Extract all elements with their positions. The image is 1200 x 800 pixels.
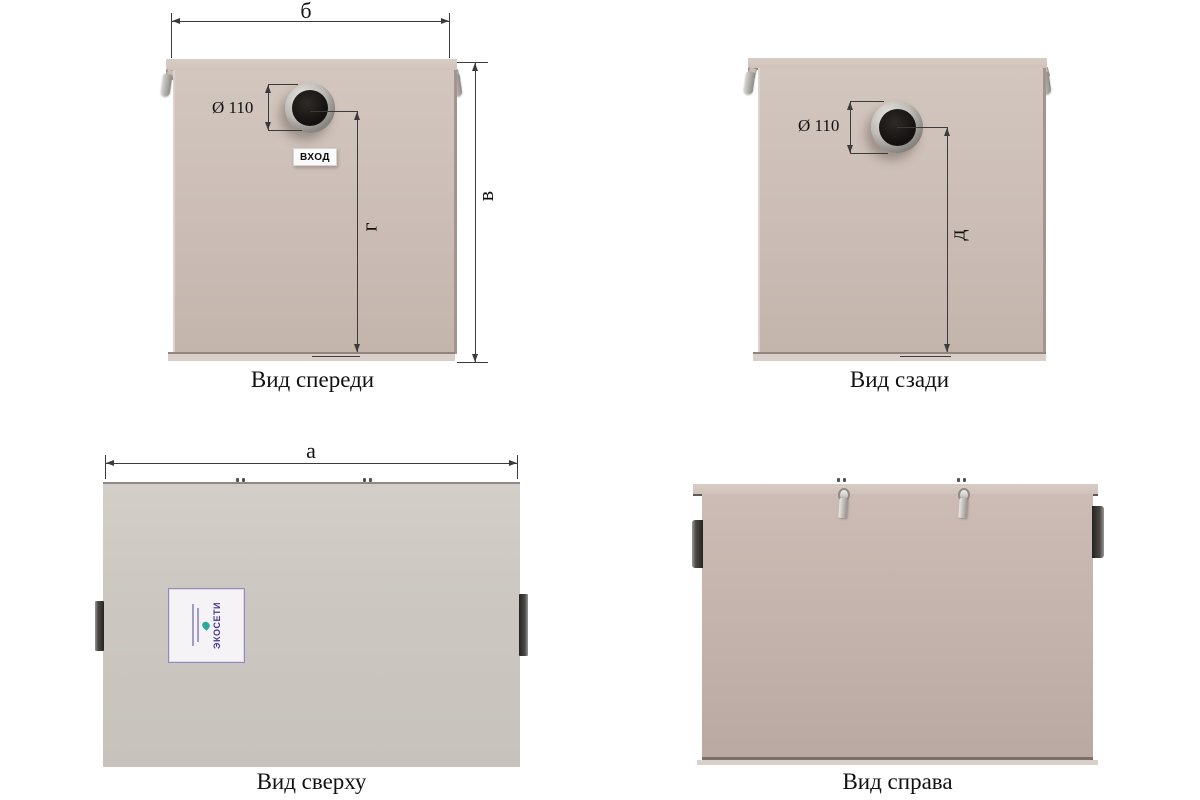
- right-pipe-stub-left: [692, 520, 703, 568]
- right-pipe-stub-right: [1092, 506, 1104, 558]
- right-bottom-flange: [697, 760, 1098, 765]
- right-body: [702, 494, 1093, 760]
- right-view: Вид справа: [0, 0, 1200, 800]
- right-latch-strap-2: [958, 498, 967, 519]
- right-latch-strap-1: [838, 498, 847, 519]
- right-hinge-pins-2: [957, 478, 969, 482]
- technical-drawing-canvas: б Ø 110 ВХОД г в Вид сп: [0, 0, 1200, 800]
- right-hinge-pins-1: [837, 478, 849, 482]
- right-view-caption: Вид справа: [702, 768, 1093, 796]
